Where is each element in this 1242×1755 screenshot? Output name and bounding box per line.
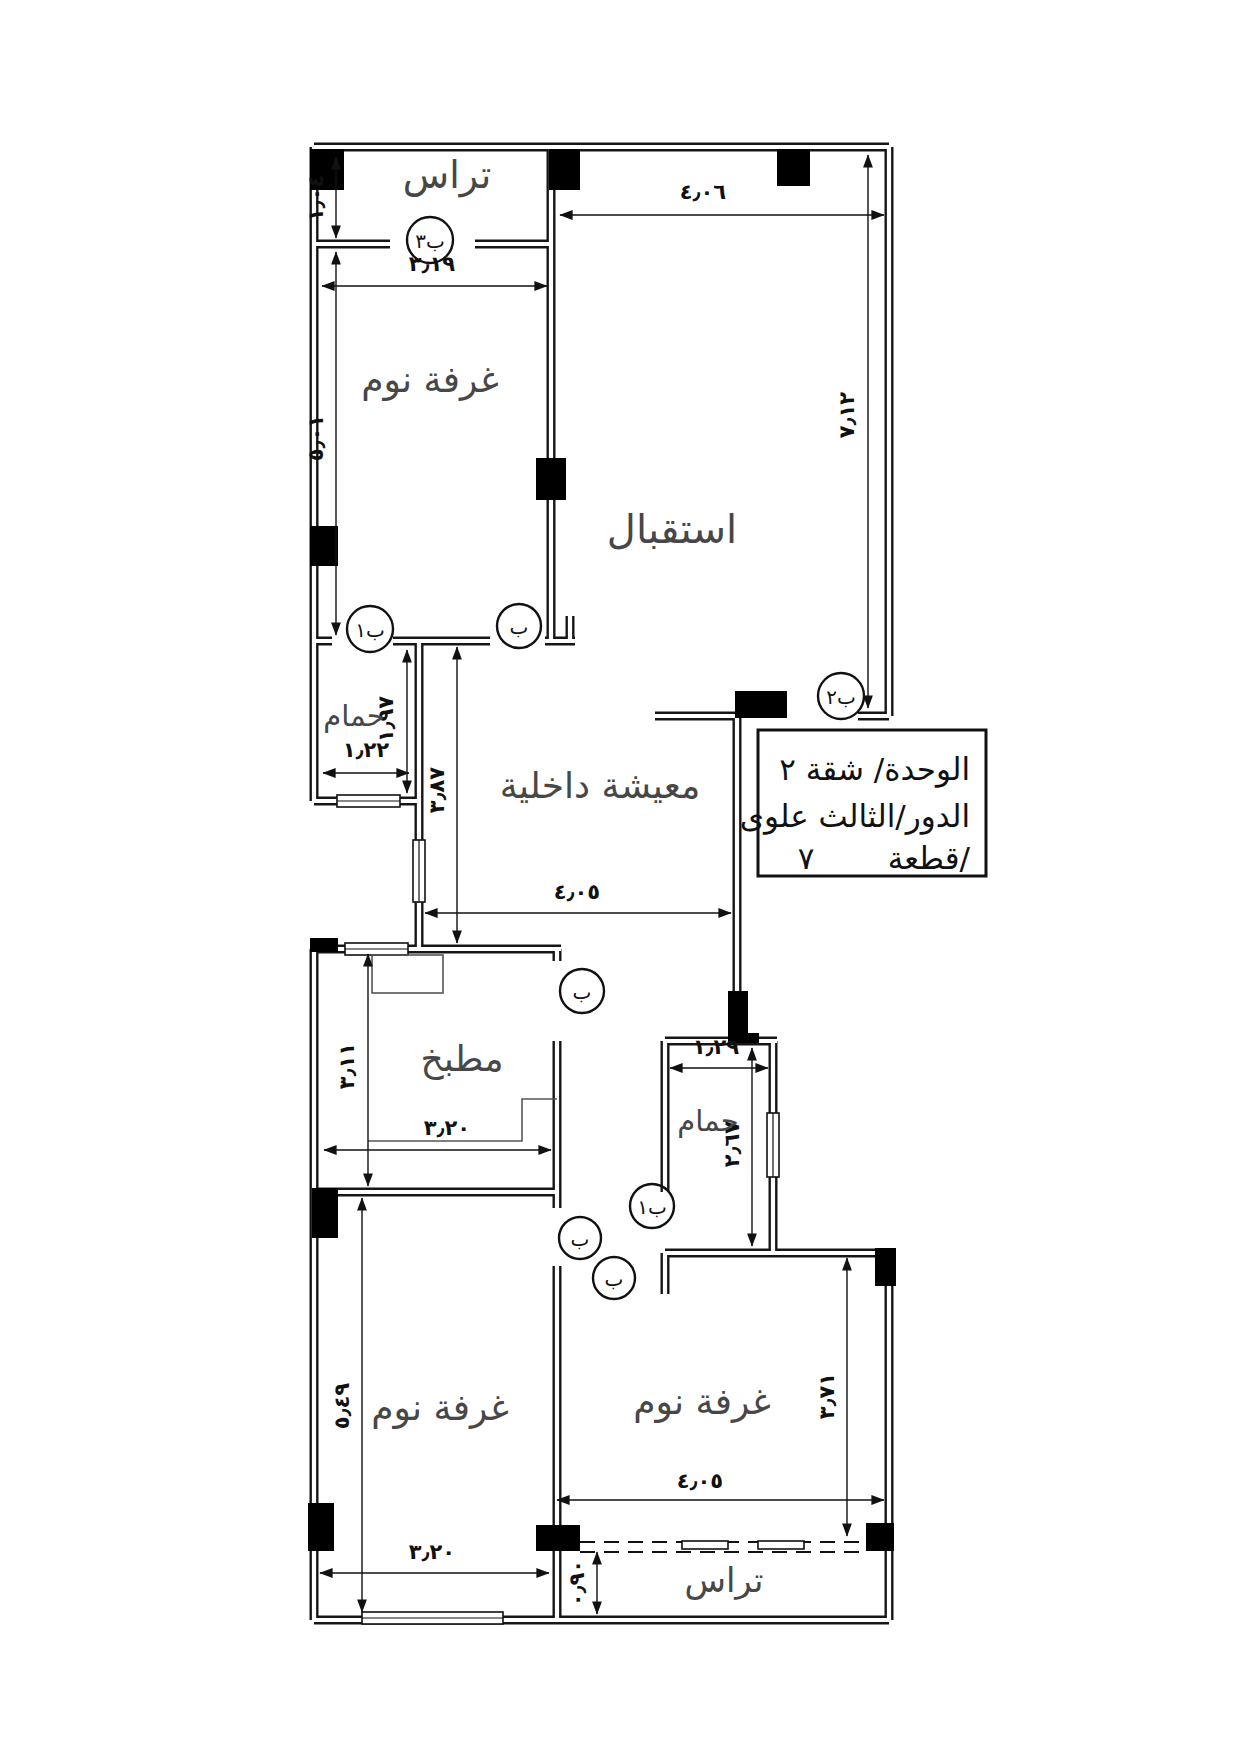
column-block (310, 938, 338, 952)
dimension-label: ٤٫٠٥ (677, 1469, 723, 1493)
dimension-label: ٣٫١١ (335, 1043, 359, 1089)
door-tag-label: ب٢ (826, 685, 856, 709)
column-block (310, 526, 338, 566)
dimension-label: ١٫٢٩ (693, 1035, 739, 1059)
title-block-line-3-label: قطعة/ (888, 840, 971, 876)
kitchen-window (345, 943, 408, 955)
dimension-label: ١٫٠٤ (304, 175, 328, 221)
door-tag-label: ب١ (355, 618, 385, 642)
title-block-line-1: الوحدة/ شقة ٢ (779, 751, 970, 788)
column-block (549, 149, 580, 190)
title-block: الوحدة/ شقة ٢ الدور/الثالث علوى قطعة/ ٧ (740, 730, 986, 876)
column-block (308, 1503, 334, 1551)
room-label-bathroom-1: حمام (323, 699, 384, 733)
dimension-label: ٣٫٢٠ (424, 1116, 470, 1140)
room-label-terrace-top: تراس (403, 153, 492, 198)
bathroom1-window (337, 795, 400, 807)
door-tag-bedroom-top: ب (497, 604, 541, 648)
dimension-label: ٣٫٧١ (815, 1373, 839, 1419)
room-label-kitchen: مطبخ (421, 1038, 504, 1080)
column-block (875, 1248, 896, 1286)
dimension-label: ٤٫٠٥ (554, 880, 600, 904)
column-block (777, 149, 810, 186)
door-tag-label: ب (573, 980, 592, 1004)
door-tag-entrance: ب٢ (818, 673, 864, 719)
door-tag-label: ب٣ (415, 229, 445, 253)
terrace-opening (580, 1541, 864, 1552)
title-block-line-3-value: ٧ (798, 840, 815, 876)
door-tag-label: ب (510, 615, 529, 639)
door-tag-bathroom2: ب١ (630, 1184, 674, 1228)
bedroom-bl-window (362, 1612, 503, 1624)
door-tag-label: ب (605, 1267, 624, 1291)
door-tag-label: ب (571, 1227, 590, 1251)
dimension-label: ٥٫٠١ (304, 415, 328, 461)
door-tag-kitchen: ب (560, 969, 604, 1013)
room-label-bedroom-bl: غرفة نوم (371, 1387, 509, 1429)
door-tag-bedroom-br: ب (593, 1257, 635, 1299)
room-label-bathroom-2: حمام (677, 1104, 738, 1138)
floor-plan-page: ب٣ ب١ ب ب٢ ب ب١ ب ب (0, 0, 1242, 1755)
column-block (735, 691, 787, 718)
dimension-label: ٣٫٢٠ (409, 1540, 455, 1564)
column-block (312, 1188, 338, 1238)
door-tag-bedroom-bl: ب (559, 1217, 601, 1259)
room-label-reception: استقبال (607, 506, 737, 552)
dimension-label: ٤٫٠٦ (680, 180, 726, 204)
column-block (744, 1033, 759, 1043)
column-block (536, 1525, 580, 1551)
room-label-living: معيشة داخلية (500, 765, 701, 806)
door-tag-label: ب١ (637, 1195, 667, 1219)
room-label-bedroom-top: غرفة نوم (361, 359, 499, 401)
dimension-label: ٣٫١٩ (409, 252, 455, 276)
title-block-line-2: الدور/الثالث علوى (740, 798, 970, 835)
column-block (536, 458, 566, 500)
dimension-label: ٠٫٩٠ (565, 1560, 589, 1606)
door-tag-bathroom1: ب١ (347, 606, 393, 652)
bathroom2-window (767, 1113, 779, 1177)
lightshaft-window (413, 840, 425, 902)
floor-plan-svg: ب٣ ب١ ب ب٢ ب ب١ ب ب (0, 0, 1242, 1755)
dimension-label: ٧٫١٢ (835, 392, 859, 438)
dimension-label: ٣٫٨٧ (425, 767, 449, 813)
dimension-label: ١٫٢٢ (343, 738, 389, 762)
room-label-terrace-bottom: تراس (684, 1560, 763, 1601)
dimension-label: ٥٫٤٩ (330, 1383, 354, 1429)
column-block (866, 1523, 894, 1551)
room-label-bedroom-br: غرفة نوم (633, 1381, 771, 1423)
